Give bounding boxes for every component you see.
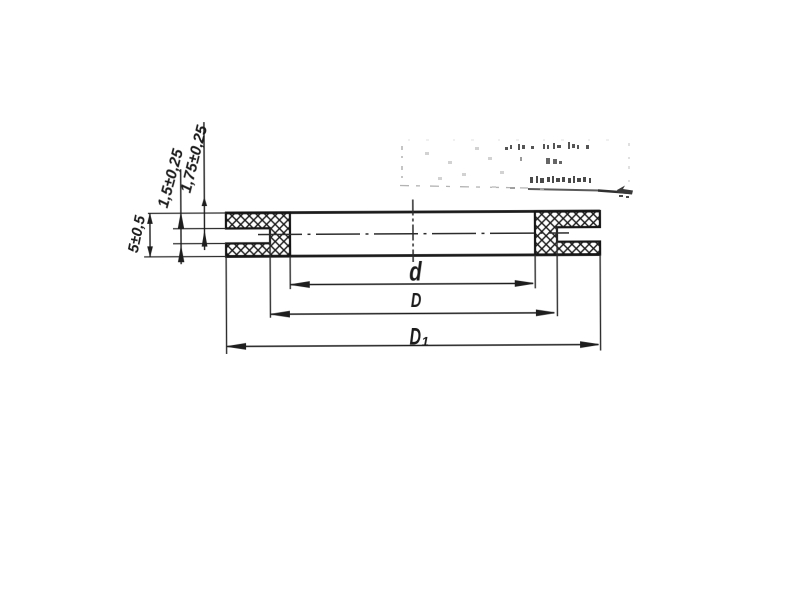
svg-text:5±0,5: 5±0,5 — [125, 214, 149, 255]
svg-text:d: d — [409, 256, 422, 286]
svg-text:D1: D1 — [409, 323, 428, 350]
svg-text:D: D — [411, 290, 422, 312]
